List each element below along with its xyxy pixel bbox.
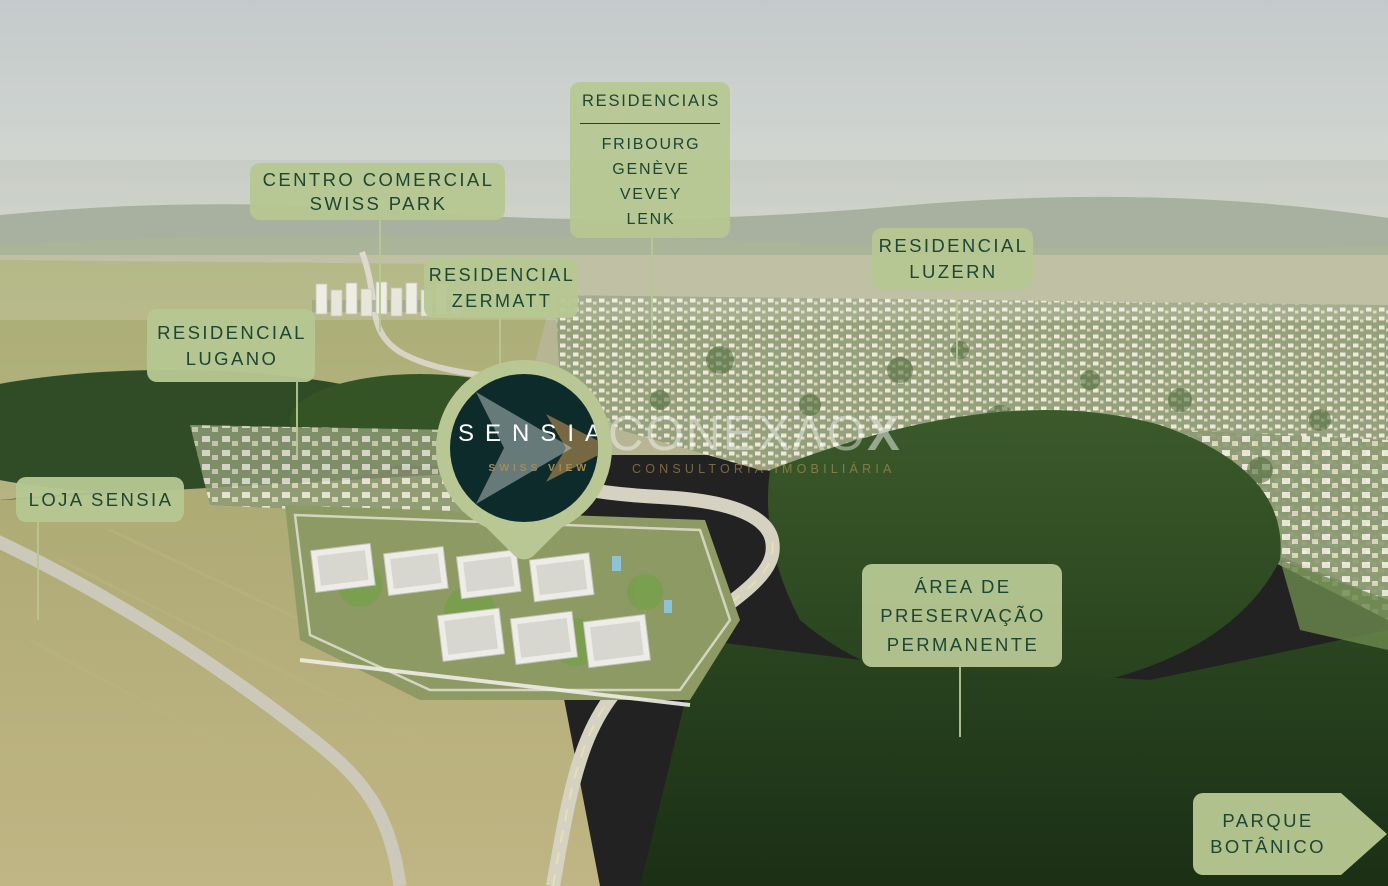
callout-line: GENÈVE xyxy=(610,157,690,182)
leader-line-loja-sensia xyxy=(37,522,39,620)
callout-line: SWISS PARK xyxy=(308,192,448,216)
callout-line: RESIDENCIAL xyxy=(877,233,1029,259)
pin-badge: SENSIA SWISS VIEW xyxy=(450,374,598,522)
pin-brand-text: SENSIA xyxy=(450,420,598,448)
callout-residencial-zermatt: RESIDENCIAL ZERMATT xyxy=(424,258,578,318)
callout-line: BOTÂNICO xyxy=(1208,834,1326,860)
callout-line: LENK xyxy=(625,207,676,232)
leader-line-lugano xyxy=(296,382,298,456)
aerial-map: CONEXΛOX CONSULTORIA IMOBILIÁRIA RESIDEN… xyxy=(0,0,1388,886)
callout-residencial-lugano: RESIDENCIAL LUGANO xyxy=(147,309,315,382)
leader-line-luzern xyxy=(956,290,958,366)
callout-area-preservacao-permanente: ÁREA DE PRESERVAÇÃO PERMANENTE xyxy=(862,564,1062,667)
callout-title: RESIDENCIAIS xyxy=(580,89,720,124)
leader-line-area-preservacao xyxy=(959,667,961,737)
callout-line: PARQUE xyxy=(1220,808,1313,834)
sensia-logo-swoosh-icon xyxy=(450,374,598,522)
callout-line: CENTRO COMERCIAL xyxy=(261,168,495,192)
location-pin: SENSIA SWISS VIEW xyxy=(436,360,612,582)
callout-residenciais: RESIDENCIAIS FRIBOURG GENÈVE VEVEY LENK xyxy=(570,82,730,238)
callout-line: RESIDENCIAL xyxy=(155,320,307,346)
callout-line: VEVEY xyxy=(618,182,682,207)
callout-line: LOJA SENSIA xyxy=(27,487,174,513)
callout-centro-comercial-swiss-park: CENTRO COMERCIAL SWISS PARK xyxy=(250,163,505,220)
direction-arrow-icon xyxy=(1341,793,1387,875)
callout-parque-botanico: PARQUE BOTÂNICO xyxy=(1193,793,1387,875)
callout-residencial-luzern: RESIDENCIAL LUZERN xyxy=(872,228,1033,290)
callout-loja-sensia: LOJA SENSIA xyxy=(16,477,184,522)
callout-line: LUGANO xyxy=(184,346,279,372)
callout-line: PERMANENTE xyxy=(885,630,1040,659)
parque-botanico-sign: PARQUE BOTÂNICO xyxy=(1193,793,1341,875)
callout-line: LUZERN xyxy=(907,259,997,285)
leader-line-centro-comercial xyxy=(379,220,381,332)
callout-line: ÁREA DE xyxy=(913,572,1012,601)
callout-line: PRESERVAÇÃO xyxy=(878,601,1046,630)
pin-sub-brand-text: SWISS VIEW xyxy=(488,462,590,474)
callout-line: RESIDENCIAL xyxy=(427,262,575,288)
callout-line: ZERMATT xyxy=(450,288,552,314)
leader-line-residenciais xyxy=(651,238,653,340)
callout-line: FRIBOURG xyxy=(600,132,701,157)
